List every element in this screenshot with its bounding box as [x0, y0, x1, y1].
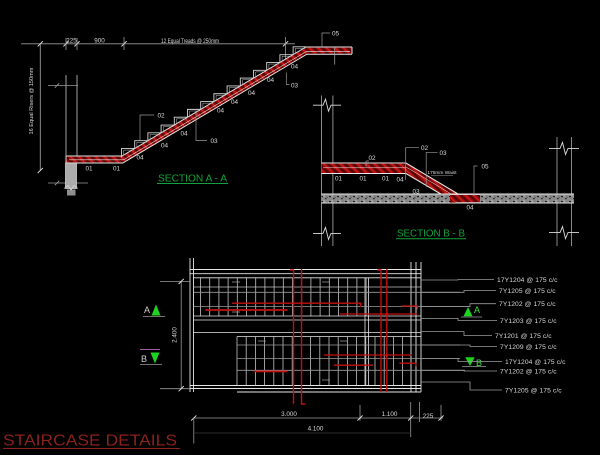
svg-text:01: 01 — [113, 166, 121, 173]
svg-text:05: 05 — [332, 31, 340, 38]
svg-text:STAIRCASE DETAILS: STAIRCASE DETAILS — [3, 433, 177, 450]
svg-text:03: 03 — [412, 189, 420, 196]
svg-text:A: A — [144, 305, 150, 315]
svg-text:225: 225 — [66, 38, 77, 45]
svg-text:7Y1209 @ 175 c/c: 7Y1209 @ 175 c/c — [500, 344, 557, 351]
svg-text:12 Equal Treads @ 250mm: 12 Equal Treads @ 250mm — [161, 38, 219, 45]
svg-text:04: 04 — [180, 131, 188, 138]
svg-text:A: A — [474, 305, 480, 315]
svg-text:03: 03 — [291, 83, 299, 90]
svg-text:7Y1202 @ 175 c/c: 7Y1202 @ 175 c/c — [499, 301, 556, 308]
svg-text:7Y1201 @ 175 c/c: 7Y1201 @ 175 c/c — [495, 333, 552, 340]
svg-text:03: 03 — [210, 138, 218, 145]
svg-text:03: 03 — [439, 150, 447, 157]
svg-text:1.100: 1.100 — [382, 411, 398, 418]
svg-text:04: 04 — [217, 108, 225, 115]
svg-text:02: 02 — [157, 113, 165, 120]
svg-text:01: 01 — [359, 176, 367, 183]
svg-text:3.000: 3.000 — [281, 411, 297, 418]
svg-text:7Y1205 @ 175 c/c: 7Y1205 @ 175 c/c — [505, 388, 562, 395]
svg-text:01: 01 — [335, 176, 343, 183]
svg-text:02: 02 — [368, 155, 376, 162]
svg-text:16 Equal Risers @ 150mm: 16 Equal Risers @ 150mm — [29, 67, 35, 134]
svg-text:04: 04 — [396, 177, 404, 184]
svg-text:900: 900 — [94, 38, 105, 45]
svg-text:17Y1204 @ 175 c/c: 17Y1204 @ 175 c/c — [505, 359, 566, 366]
svg-text:04: 04 — [291, 64, 299, 71]
svg-text:04: 04 — [161, 143, 169, 150]
svg-text:225: 225 — [423, 413, 434, 420]
svg-text:7Y1205 @ 175 c/c: 7Y1205 @ 175 c/c — [499, 288, 556, 295]
svg-text:B: B — [141, 354, 147, 364]
svg-text:175mm Waist: 175mm Waist — [427, 170, 457, 176]
svg-text:2.400: 2.400 — [172, 327, 179, 343]
svg-text:SECTION B - B: SECTION B - B — [397, 228, 465, 240]
svg-text:17Y1204 @ 175 c/c: 17Y1204 @ 175 c/c — [497, 277, 558, 284]
svg-text:02: 02 — [421, 145, 429, 152]
svg-text:SECTION A - A: SECTION A - A — [158, 173, 227, 185]
svg-text:05: 05 — [481, 164, 489, 171]
svg-text:01: 01 — [382, 176, 390, 183]
svg-text:01: 01 — [85, 166, 93, 173]
svg-text:04: 04 — [466, 205, 474, 212]
svg-text:04: 04 — [136, 155, 144, 162]
svg-text:04: 04 — [248, 90, 256, 97]
svg-text:7Y1203 @ 175 c/c: 7Y1203 @ 175 c/c — [500, 318, 557, 325]
svg-text:7Y1202 @ 175 c/c: 7Y1202 @ 175 c/c — [500, 369, 557, 376]
svg-text:04: 04 — [267, 77, 275, 84]
svg-text:04: 04 — [231, 99, 239, 106]
svg-text:4.100: 4.100 — [308, 426, 324, 433]
